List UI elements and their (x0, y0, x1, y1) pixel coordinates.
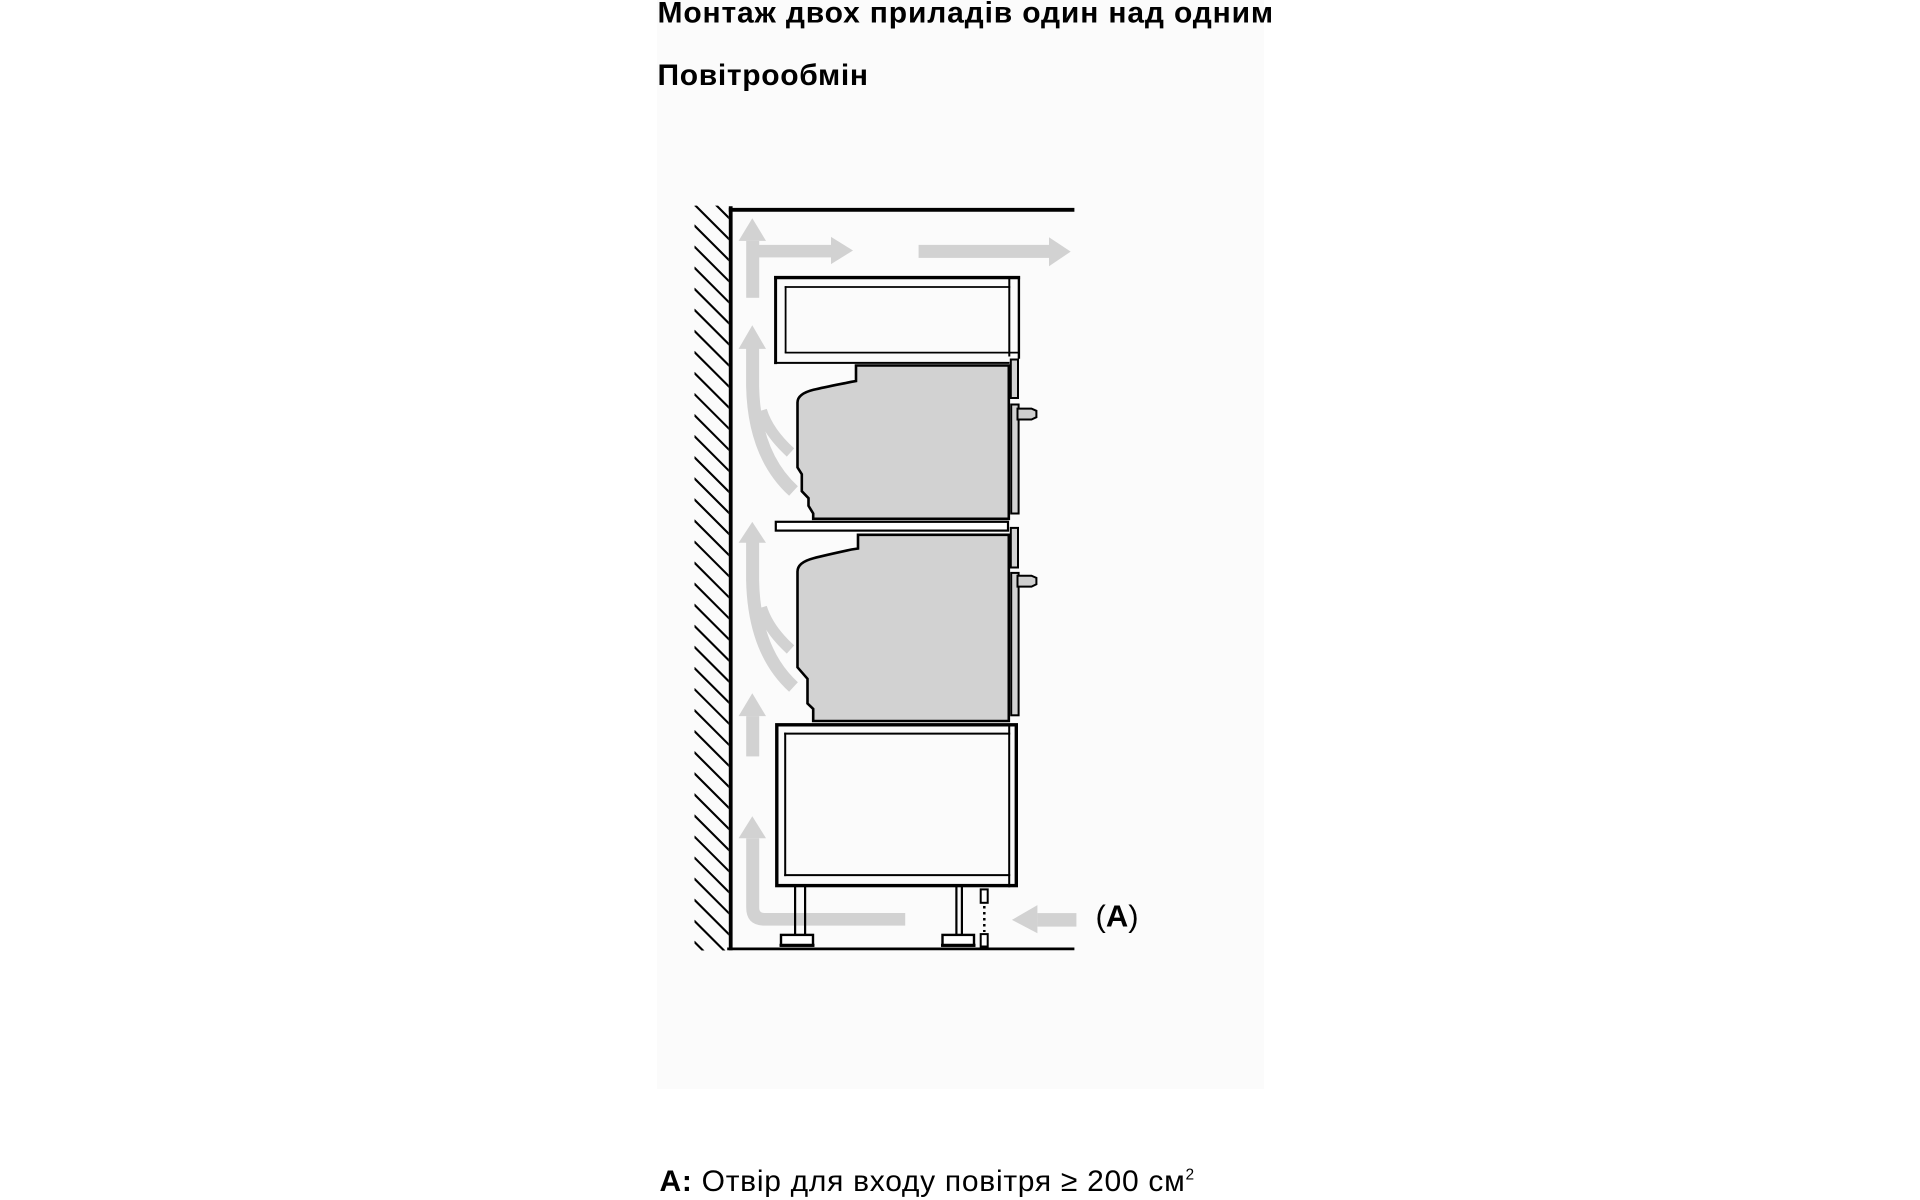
svg-text:Монтаж двох приладів один над: Монтаж двох приладів один над одним (658, 0, 1274, 30)
svg-text:A: Отвір для входу повітря ≥ 2: A: Отвір для входу повітря ≥ 200 см2 (660, 1165, 1195, 1198)
svg-text:(A): (A) (1096, 899, 1139, 934)
svg-text:Повітрообмін: Повітрообмін (658, 59, 869, 92)
